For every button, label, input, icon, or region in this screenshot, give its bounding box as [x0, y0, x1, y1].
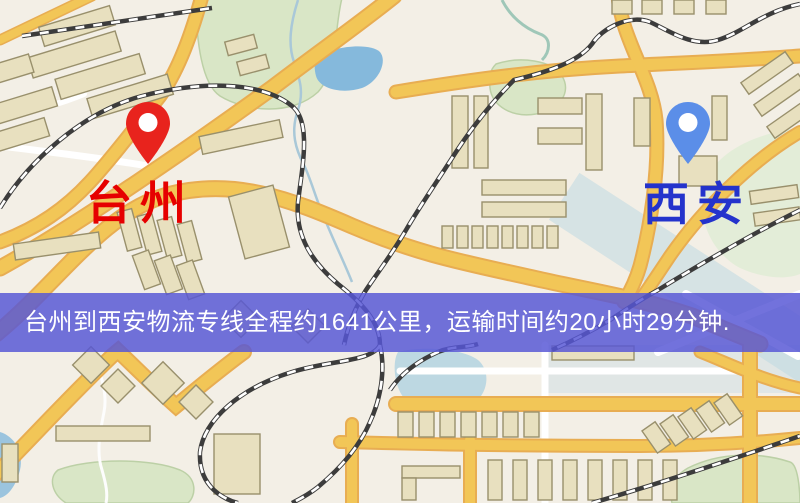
origin-pin-icon[interactable]: [125, 101, 171, 165]
destination-pin-icon[interactable]: [665, 101, 711, 165]
banner-text: 台州到西安物流专线全程约1641公里，运输时间约20小时29分钟.: [24, 293, 730, 352]
origin-place-label: 台州: [86, 180, 194, 226]
destination-place-label: 西安: [643, 181, 751, 227]
map-screenshot: 台州 西安 台州到西安物流专线全程约1641公里，运输时间约20小时29分钟.: [0, 0, 800, 503]
map-canvas[interactable]: [0, 0, 800, 503]
route-info-banner: 台州到西安物流专线全程约1641公里，运输时间约20小时29分钟.: [0, 293, 800, 352]
